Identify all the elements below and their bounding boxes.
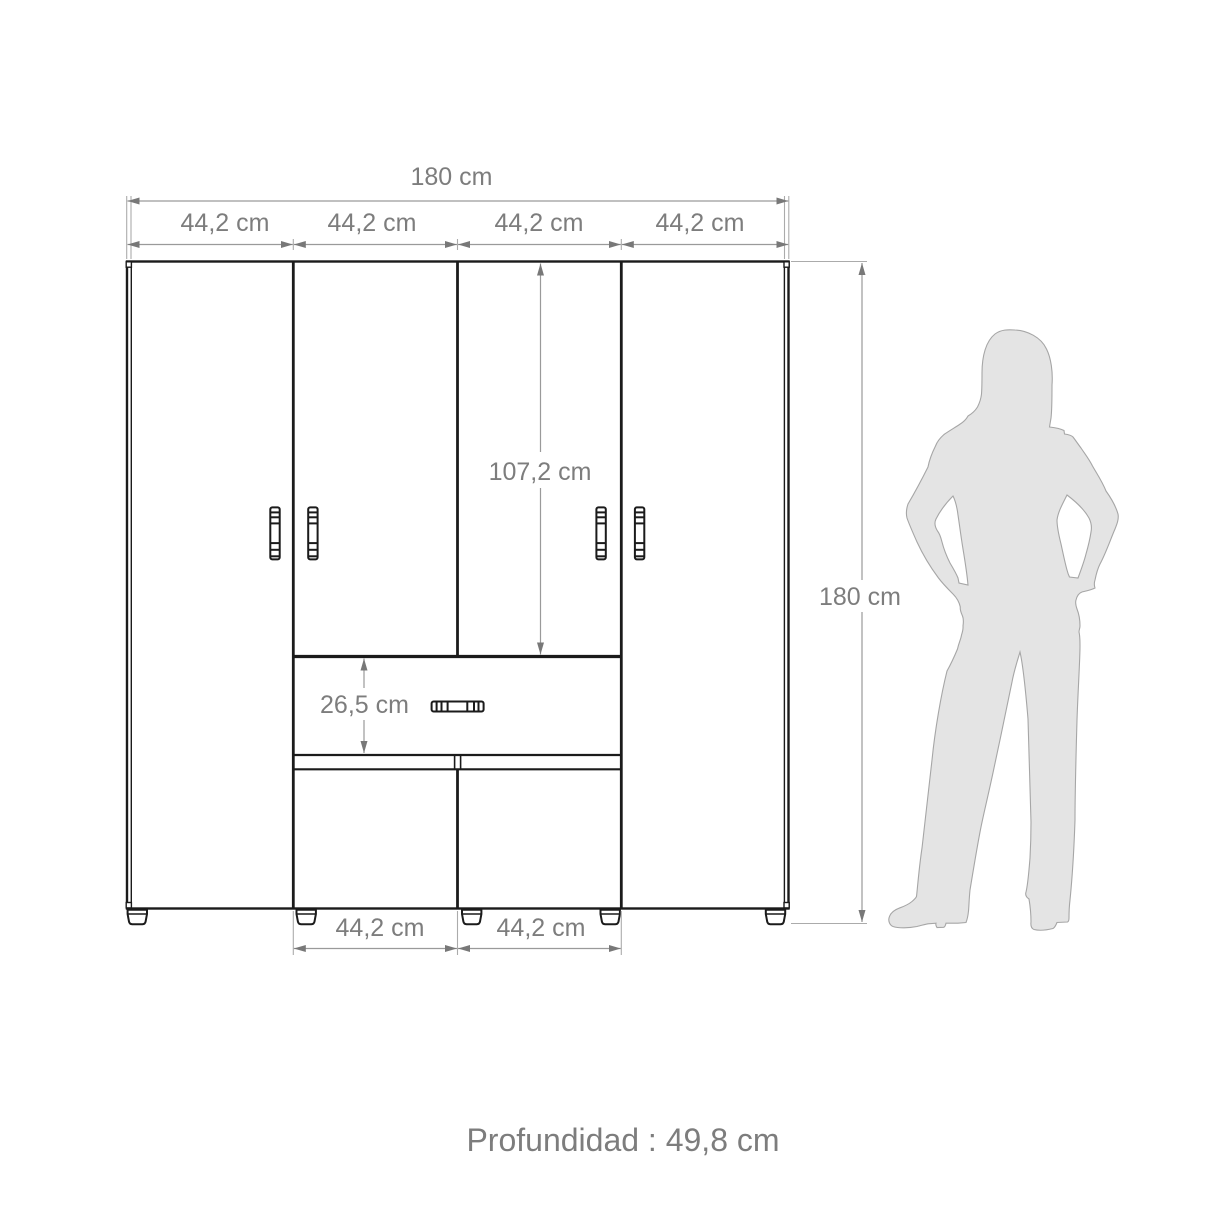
svg-text:107,2 cm: 107,2 cm <box>489 458 592 486</box>
svg-text:44,2 cm: 44,2 cm <box>656 209 745 237</box>
svg-text:44,2 cm: 44,2 cm <box>328 209 417 237</box>
svg-text:44,2 cm: 44,2 cm <box>336 914 425 942</box>
svg-text:44,2 cm: 44,2 cm <box>181 209 270 237</box>
svg-text:Profundidad : 49,8 cm: Profundidad : 49,8 cm <box>466 1122 779 1158</box>
svg-text:180 cm: 180 cm <box>411 163 493 191</box>
svg-text:26,5 cm: 26,5 cm <box>320 691 409 719</box>
svg-text:180 cm: 180 cm <box>819 583 901 611</box>
svg-text:44,2 cm: 44,2 cm <box>495 209 584 237</box>
svg-text:44,2 cm: 44,2 cm <box>497 914 586 942</box>
